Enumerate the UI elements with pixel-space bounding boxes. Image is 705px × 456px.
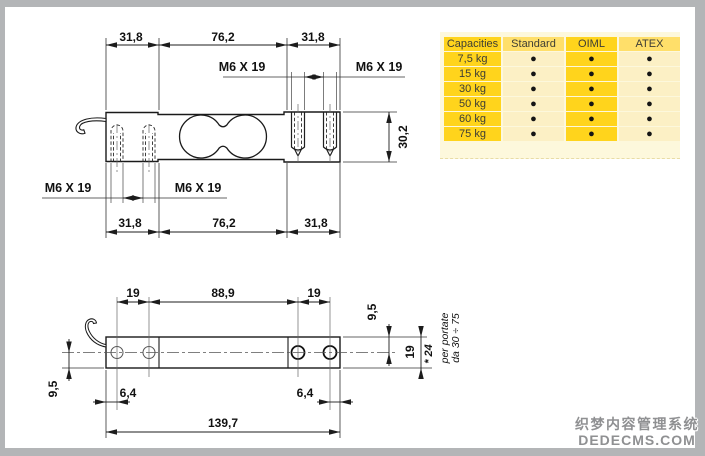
thread-label-bottom-left: M6 X 19	[45, 181, 92, 195]
dim-139-7-total: 139,7	[208, 416, 238, 430]
dim-9-5-left: 9,5	[46, 380, 60, 397]
watermark-site-text: DEDECMS.COM	[575, 432, 699, 448]
dim-19-right: 19	[307, 286, 321, 300]
dim-30-2-height: 30,2	[396, 125, 410, 149]
datasheet-page: 31,8 76,2 31,8 M6 X 19 M6 X 19 M6 X 19 M…	[0, 0, 705, 456]
availability-dot: ●	[566, 52, 617, 66]
capacity-cell: 60 kg	[444, 112, 501, 126]
watermark-cn-text: 织梦内容管理系统	[575, 416, 699, 432]
capacity-cell: 15 kg	[444, 67, 501, 81]
column-header-standard: Standard	[503, 37, 564, 51]
dim-31-8-bottom-left: 31,8	[118, 216, 142, 230]
availability-dot: ●	[619, 52, 680, 66]
capacities-table: Capacities Standard OIML ATEX 7,5 kg ● ●…	[444, 37, 680, 141]
availability-dot: ●	[619, 67, 680, 81]
availability-dot: ●	[503, 97, 564, 111]
availability-dot: ●	[566, 67, 617, 81]
thread-label-top-left: M6 X 19	[219, 60, 266, 74]
cable-exit	[76, 118, 106, 134]
capacity-cell: 75 kg	[444, 127, 501, 141]
top-view: 31,8 76,2 31,8 M6 X 19 M6 X 19 M6 X 19 M…	[42, 30, 410, 238]
dim-31-8-top-left: 31,8	[119, 30, 143, 44]
availability-dot: ●	[566, 97, 617, 111]
availability-dot: ●	[619, 82, 680, 96]
side-view: 19 88,9 19 6,4 6,4 139,7 9,5 9,5 19 * 24…	[46, 286, 462, 438]
projection-lines-left	[111, 163, 155, 203]
dim-19-height: 19	[403, 345, 417, 359]
capacities-panel: Capacities Standard OIML ATEX 7,5 kg ● ●…	[440, 32, 680, 159]
availability-dot: ●	[503, 67, 564, 81]
column-header-oiml: OIML	[566, 37, 617, 51]
dim-76-2-top: 76,2	[211, 30, 235, 44]
dim-31-8-bottom-right: 31,8	[304, 216, 328, 230]
column-header-atex: ATEX	[619, 37, 680, 51]
availability-dot: ●	[619, 112, 680, 126]
availability-dot: ●	[503, 82, 564, 96]
availability-dot: ●	[619, 127, 680, 141]
capacity-cell: 7,5 kg	[444, 52, 501, 66]
dim-31-8-top-right: 31,8	[301, 30, 325, 44]
dim-9-5-right: 9,5	[365, 303, 379, 320]
availability-dot: ●	[619, 97, 680, 111]
cable-exit-side	[85, 319, 106, 347]
dim-19-left: 19	[126, 286, 140, 300]
availability-dot: ●	[566, 82, 617, 96]
dim-6-4-left: 6,4	[120, 386, 137, 400]
dim-76-2-bottom: 76,2	[212, 216, 236, 230]
availability-dot: ●	[566, 127, 617, 141]
thread-label-top-right: M6 X 19	[356, 60, 403, 74]
capacity-cell: 50 kg	[444, 97, 501, 111]
thread-label-bottom-right: M6 X 19	[175, 181, 222, 195]
dim-6-4-right: 6,4	[297, 386, 314, 400]
dim-88-9: 88,9	[211, 286, 235, 300]
availability-dot: ●	[503, 112, 564, 126]
availability-dot: ●	[503, 127, 564, 141]
dim-24-alt-height: * 24	[423, 344, 435, 364]
watermark: 织梦内容管理系统 DEDECMS.COM	[575, 416, 699, 448]
capacity-note-line2: da 30 ÷ 75	[450, 313, 462, 363]
availability-dot: ●	[566, 112, 617, 126]
column-header-capacities: Capacities	[444, 37, 501, 51]
capacity-cell: 30 kg	[444, 82, 501, 96]
availability-dot: ●	[503, 52, 564, 66]
